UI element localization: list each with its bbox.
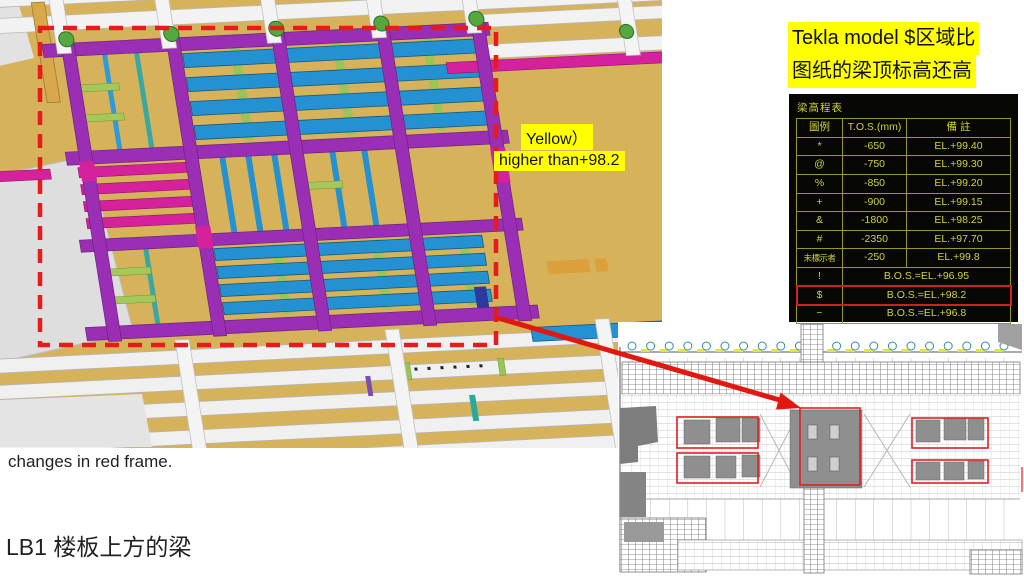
cell-tos: -1800 — [843, 212, 907, 231]
note-title-line1: Tekla model $区域比 — [788, 22, 979, 55]
note-title: Tekla model $区域比 图纸的梁顶标高还高 — [788, 22, 1024, 88]
plan-corridor-bottom — [804, 488, 824, 573]
elevation-table-panel: 梁高程表 圖例 T.O.S.(mm) 備 註 *-650EL.+99.40@-7… — [789, 94, 1018, 322]
plan-band-br — [970, 550, 1022, 574]
cell-tos: -750 — [843, 156, 907, 175]
table-row: ~B.O.S.=EL.+96.8 — [797, 305, 1011, 324]
cell-bos: B.O.S.=EL.+96.8 — [843, 305, 1011, 324]
cell-remark: EL.+99.8 — [907, 249, 1011, 268]
cell-symbol: # — [797, 230, 843, 249]
gray-slab-bottom — [0, 394, 152, 447]
higher-than-label: higher than+98.2 — [494, 151, 625, 171]
cell-symbol: % — [797, 174, 843, 193]
note-title-line2: 图纸的梁顶标高还高 — [788, 55, 976, 88]
cell-remark: EL.+98.25 — [907, 212, 1011, 231]
table-row: $B.O.S.=EL.+98.2 — [797, 286, 1011, 305]
elevation-table-body: *-650EL.+99.40@-750EL.+99.30%-850EL.+99.… — [797, 137, 1011, 323]
table-row: &-1800EL.+98.25 — [797, 212, 1011, 231]
cell-tos: -900 — [843, 193, 907, 212]
cell-symbol: ~ — [797, 305, 843, 324]
cell-symbol: $ — [797, 286, 843, 305]
caption-changes: changes in red frame. — [8, 452, 172, 472]
plan-band-top — [622, 362, 1020, 394]
cell-remark: EL.+99.30 — [907, 156, 1011, 175]
table-row: *-650EL.+99.40 — [797, 137, 1011, 156]
plan-corridor-top — [801, 324, 823, 362]
model-skewed-space — [0, 0, 662, 448]
floor-plan-drawing — [618, 322, 1024, 576]
cell-symbol: @ — [797, 156, 843, 175]
orange-beam — [546, 259, 590, 274]
plan-core-left-edge2 — [620, 472, 646, 517]
table-row: %-850EL.+99.20 — [797, 174, 1011, 193]
caption-lb1: LB1 楼板上方的梁 — [6, 528, 191, 562]
cell-remark: EL.+99.20 — [907, 174, 1011, 193]
cell-symbol: 未標示者 — [797, 249, 843, 268]
cell-bos: B.O.S.=EL.+98.2 — [843, 286, 1011, 305]
cell-remark: EL.+97.70 — [907, 230, 1011, 249]
cell-tos: -650 — [843, 137, 907, 156]
tekla-model-3d-view — [0, 0, 662, 448]
elevation-table: 圖例 T.O.S.(mm) 備 註 *-650EL.+99.40@-750EL.… — [796, 118, 1011, 324]
header-remark: 備 註 — [907, 119, 1011, 138]
elevation-table-title: 梁高程表 — [797, 100, 1011, 115]
table-row: @-750EL.+99.30 — [797, 156, 1011, 175]
cell-symbol: ! — [797, 268, 843, 287]
header-symbol: 圖例 — [797, 119, 843, 138]
table-header-row: 圖例 T.O.S.(mm) 備 註 — [797, 119, 1011, 138]
orange-beam-small — [594, 258, 608, 272]
plan-block-bl — [624, 522, 664, 542]
cell-remark: EL.+99.15 — [907, 193, 1011, 212]
table-row: +-900EL.+99.15 — [797, 193, 1011, 212]
cell-symbol: * — [797, 137, 843, 156]
cell-bos: B.O.S.=EL.+96.95 — [843, 268, 1011, 287]
table-row: 未標示者-250EL.+99.8 — [797, 249, 1011, 268]
table-row: !B.O.S.=EL.+96.95 — [797, 268, 1011, 287]
cell-tos: -2350 — [843, 230, 907, 249]
slide: Yellow） higher than+98.2 Tekla model $区域… — [0, 0, 1024, 576]
table-row: #-2350EL.+97.70 — [797, 230, 1011, 249]
header-tos: T.O.S.(mm) — [843, 119, 907, 138]
cell-remark: EL.+99.40 — [907, 137, 1011, 156]
cell-symbol: + — [797, 193, 843, 212]
cell-tos: -250 — [843, 249, 907, 268]
cell-symbol: & — [797, 212, 843, 231]
cell-tos: -850 — [843, 174, 907, 193]
yellow-region-label: Yellow） — [521, 124, 593, 150]
